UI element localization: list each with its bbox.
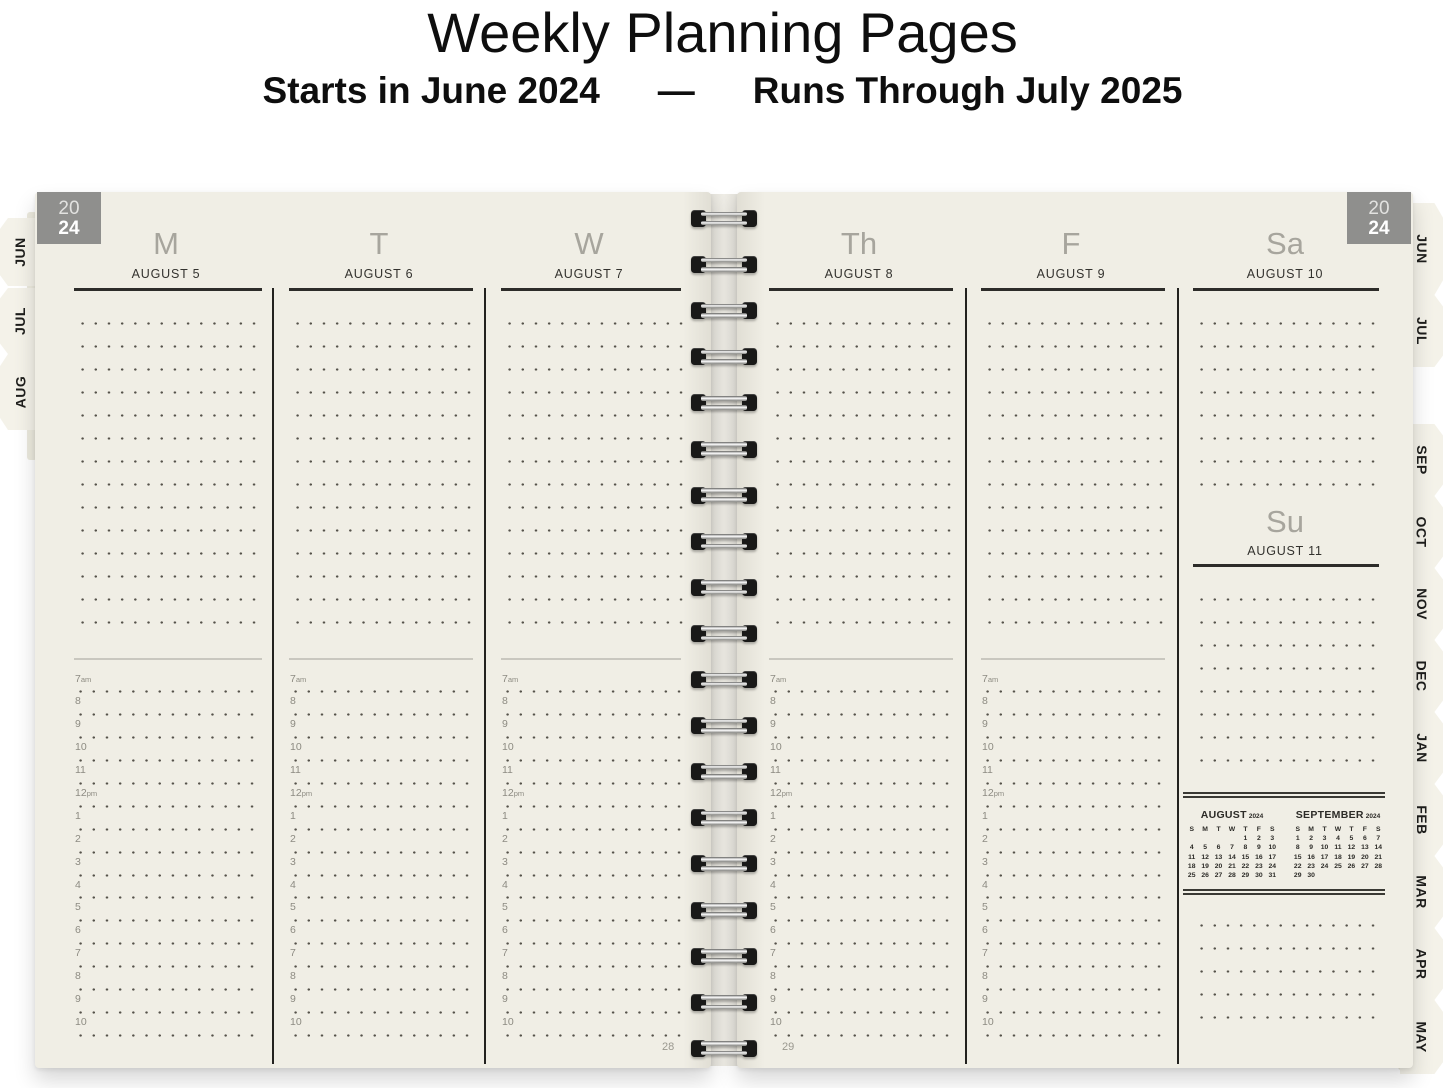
dow-cell: S [1372, 825, 1385, 834]
date-cell: 25 [1331, 862, 1344, 871]
time-slot-dots [289, 805, 473, 808]
time-slot-dots [981, 782, 1165, 785]
time-slot-dots [981, 851, 1165, 854]
dow-cell: W [1225, 825, 1238, 834]
mini-calendar-title: AUGUST2024 [1185, 805, 1279, 823]
time-slot: 6 [501, 924, 683, 947]
coil-wire-top [701, 534, 747, 539]
dow-cell: F [1252, 825, 1265, 834]
meridiem-label: am [81, 675, 91, 684]
time-label: 11 [770, 764, 781, 776]
time-label: 3 [75, 856, 81, 868]
time-label: 7am [75, 673, 91, 685]
time-label: 2 [982, 833, 988, 845]
time-slot-dots [769, 942, 953, 945]
binding-coil [691, 210, 757, 227]
time-label: 9 [502, 993, 508, 1005]
time-slot: 4 [289, 878, 475, 901]
date-cell: 17 [1318, 853, 1331, 862]
time-label: 2 [75, 833, 81, 845]
coil-wire-top [701, 673, 747, 678]
time-label: 10 [290, 741, 302, 753]
mini-calendar-september: SEPTEMBER2024SMTWTFS12345678910111213141… [1291, 805, 1385, 885]
time-slot: 7 [74, 947, 264, 970]
time-label: 5 [982, 901, 988, 913]
date-cell: 19 [1198, 862, 1211, 871]
month-tab-left-jun: JUN [0, 218, 40, 286]
month-tab-left-jul: JUL [0, 288, 40, 354]
schedule: 7am89101112pm12345678910 [981, 672, 1167, 1038]
time-slot: 11 [981, 764, 1167, 787]
dow-cell: S [1185, 825, 1198, 834]
binding-coil [691, 809, 757, 826]
date-cell: 1 [1239, 834, 1252, 843]
day-rule [769, 288, 953, 291]
year-badge-line1: 20 [37, 199, 101, 219]
coil-wire-top [701, 1041, 747, 1046]
time-label: 1 [290, 810, 296, 822]
date-cell: 14 [1372, 843, 1385, 852]
date-cell: 15 [1239, 853, 1252, 862]
time-label: 12pm [290, 787, 312, 799]
dow-cell: M [1198, 825, 1211, 834]
coil-wire-bottom [701, 590, 747, 595]
time-slot-dots [289, 1034, 473, 1037]
date-cell [1185, 834, 1198, 843]
month-tab-left-aug: AUG [0, 354, 40, 430]
time-label: 7am [290, 673, 306, 685]
dow-cell: M [1304, 825, 1317, 834]
mini-calendar-month: SEPTEMBER [1296, 809, 1364, 821]
coil-wire-bottom [701, 221, 747, 226]
date-cell [1318, 871, 1331, 880]
time-slot-dots [769, 1011, 953, 1014]
coil-wire-bottom [701, 958, 747, 963]
dow-cell: F [1358, 825, 1371, 834]
date-cell: 25 [1185, 871, 1198, 880]
time-slot: 7am [501, 672, 683, 695]
time-slot-dots [501, 1011, 681, 1014]
time-slot-dots [501, 919, 681, 922]
time-label: 1 [982, 810, 988, 822]
time-slot: 5 [289, 901, 475, 924]
meridiem-label: am [988, 675, 998, 684]
day-rule [981, 288, 1165, 291]
time-slot: 1 [501, 809, 683, 832]
coil-wire-bottom [701, 1051, 747, 1056]
meridiem-label: am [296, 675, 306, 684]
binding-coil [691, 1040, 757, 1057]
date-cell: 26 [1345, 862, 1358, 871]
date-cell: 27 [1212, 871, 1225, 880]
time-slot: 7 [769, 947, 955, 970]
coil-wire-top [701, 811, 747, 816]
date-cell: 3 [1318, 834, 1331, 843]
date-cell: 10 [1318, 843, 1331, 852]
coil-wire-bottom [701, 912, 747, 917]
date-cell [1331, 871, 1344, 880]
time-label: 10 [982, 1016, 994, 1028]
time-label: 3 [770, 856, 776, 868]
day-date-th: AUGUST 8 [755, 267, 963, 281]
time-slot-dots [501, 942, 681, 945]
time-label: 7am [770, 673, 786, 685]
day-abbr-w: W [487, 226, 691, 262]
day-column-m: MAUGUST 57am89101112pm12345678910 [60, 192, 272, 1068]
time-slot-dots [769, 713, 953, 716]
time-slot-dots [74, 1034, 262, 1037]
time-slot-dots [769, 1034, 953, 1037]
time-label: 8 [290, 970, 296, 982]
coil-wire-top [701, 995, 747, 1000]
time-slot-dots [981, 896, 1165, 899]
subtitle-start: Starts in June 2024 [263, 70, 600, 112]
time-slot: 12pm [501, 786, 683, 809]
time-label: 9 [502, 718, 508, 730]
notes-grid-bottom [1193, 904, 1379, 1036]
time-label: 6 [770, 924, 776, 936]
time-label: 11 [290, 764, 301, 776]
time-slot: 11 [74, 764, 264, 787]
time-label: 9 [770, 993, 776, 1005]
binding-coil [691, 533, 757, 550]
mini-calendar-august: AUGUST2024SMTWTFS12345678910111213141516… [1185, 805, 1279, 885]
date-cell [1212, 834, 1225, 843]
binding-coil [691, 302, 757, 319]
time-slot-dots [501, 988, 681, 991]
time-slot: 12pm [289, 786, 475, 809]
time-slot: 5 [769, 901, 955, 924]
schedule: 7am89101112pm12345678910 [501, 672, 683, 1038]
time-slot: 3 [74, 855, 264, 878]
date-cell: 24 [1318, 862, 1331, 871]
date-cell: 16 [1304, 853, 1317, 862]
coil-wire-bottom [701, 728, 747, 733]
schedule: 7am89101112pm12345678910 [289, 672, 475, 1038]
time-slot: 9 [289, 992, 475, 1015]
coil-wire-bottom [701, 497, 747, 502]
month-tab-label: JUN [1413, 234, 1429, 264]
time-slot-dots [501, 713, 681, 716]
time-slot: 7 [981, 947, 1167, 970]
time-slot-dots [769, 851, 953, 854]
coil-wire-top [701, 488, 747, 493]
dow-cell: T [1212, 825, 1225, 834]
notes-grid [74, 302, 264, 644]
day-date-w: AUGUST 7 [487, 267, 691, 281]
coil-wire-top [701, 580, 747, 585]
notes-grid [289, 302, 475, 644]
time-slot-dots [769, 828, 953, 831]
time-label: 8 [770, 970, 776, 982]
coil-wire-top [701, 442, 747, 447]
time-slot-dots [769, 896, 953, 899]
binding-coil [691, 579, 757, 596]
day-abbr-f: F [967, 226, 1175, 262]
meridiem-label: pm [87, 789, 97, 798]
time-slot-dots [74, 851, 262, 854]
time-label: 10 [502, 1016, 514, 1028]
coil-wire-top [701, 258, 747, 263]
coil-wire-bottom [701, 1005, 747, 1010]
time-slot-dots [981, 828, 1165, 831]
schedule-separator [981, 658, 1165, 660]
time-label: 10 [75, 1016, 87, 1028]
time-label: 9 [75, 718, 81, 730]
notes-grid [769, 302, 955, 644]
time-label: 7 [75, 947, 81, 959]
date-cell [1345, 871, 1358, 880]
time-slot: 6 [289, 924, 475, 947]
time-slot-dots [981, 1034, 1165, 1037]
date-cell: 27 [1358, 862, 1371, 871]
time-slot: 12pm [769, 786, 955, 809]
day-date-f: AUGUST 9 [967, 267, 1175, 281]
right-page: 20 24 Sa AUGUST 10 Su AUGUST 11 AUGUST20… [737, 192, 1413, 1068]
schedule-separator [289, 658, 473, 660]
date-cell: 11 [1185, 853, 1198, 862]
date-cell: 3 [1266, 834, 1279, 843]
date-cell [1225, 834, 1238, 843]
time-slot-dots [289, 713, 473, 716]
coil-wire-bottom [701, 451, 747, 456]
time-slot: 9 [769, 992, 955, 1015]
coil-wire-bottom [701, 313, 747, 318]
time-slot-dots [74, 690, 262, 693]
time-slot-dots [74, 942, 262, 945]
time-slot: 8 [501, 970, 683, 993]
time-label: 12pm [502, 787, 524, 799]
time-slot: 8 [74, 970, 264, 993]
time-slot: 9 [501, 992, 683, 1015]
time-slot: 9 [74, 992, 264, 1015]
meridiem-label: pm [782, 789, 792, 798]
mini-calendar-year: 2024 [1249, 813, 1263, 820]
month-tab-label: APR [1414, 948, 1430, 979]
time-slot-dots [289, 736, 473, 739]
time-slot-dots [289, 896, 473, 899]
time-slot: 8 [769, 695, 955, 718]
month-tab-label: OCT [1414, 516, 1430, 547]
time-label: 11 [75, 764, 86, 776]
day-column-w: WAUGUST 77am89101112pm12345678910 [487, 192, 691, 1068]
time-label: 9 [290, 718, 296, 730]
month-tab-label: AUG [12, 376, 28, 409]
date-cell [1198, 834, 1211, 843]
planner-product-image: Weekly Planning Pages Starts in June 202… [0, 0, 1445, 1088]
day-column-t: TAUGUST 67am89101112pm12345678910 [275, 192, 483, 1068]
time-slot: 3 [981, 855, 1167, 878]
meridiem-label: am [508, 675, 518, 684]
hero-subtitle: Starts in June 2024 — Runs Through July … [0, 70, 1445, 112]
month-tab-label: FEB [1414, 805, 1430, 835]
time-slot-dots [981, 874, 1165, 877]
time-slot-dots [501, 965, 681, 968]
time-slot-dots [981, 1011, 1165, 1014]
notes-grid-saturday [1193, 302, 1379, 502]
time-slot: 3 [769, 855, 955, 878]
column-divider [272, 288, 274, 1064]
time-slot-dots [501, 759, 681, 762]
time-label: 5 [770, 901, 776, 913]
time-label: 4 [75, 879, 81, 891]
mini-calendar-year: 2024 [1366, 813, 1380, 820]
time-slot-dots [289, 690, 473, 693]
time-slot: 10 [981, 741, 1167, 764]
schedule: 7am89101112pm12345678910 [74, 672, 264, 1038]
time-slot-dots [74, 1011, 262, 1014]
time-slot-dots [501, 690, 681, 693]
time-slot: 10 [74, 1015, 264, 1038]
date-cell: 8 [1291, 843, 1304, 852]
time-label: 10 [75, 741, 87, 753]
time-label: 10 [502, 741, 514, 753]
binding-coil [691, 256, 757, 273]
day-rule [289, 288, 473, 291]
date-cell: 12 [1345, 843, 1358, 852]
time-slot: 2 [769, 832, 955, 855]
mini-calendar-grid: SMTWTFS123456789101112131415161718192021… [1291, 825, 1385, 880]
date-cell: 22 [1239, 862, 1252, 871]
time-slot-dots [769, 874, 953, 877]
time-slot: 8 [981, 970, 1167, 993]
mini-calendars: AUGUST2024SMTWTFS12345678910111213141516… [1185, 805, 1385, 885]
time-slot: 1 [74, 809, 264, 832]
day-abbr-th: Th [755, 226, 963, 262]
time-slot: 4 [501, 878, 683, 901]
time-slot-dots [74, 713, 262, 716]
time-slot: 10 [289, 1015, 475, 1038]
date-cell: 14 [1225, 853, 1238, 862]
time-slot-dots [501, 874, 681, 877]
time-slot-dots [769, 690, 953, 693]
date-cell: 16 [1252, 853, 1265, 862]
date-cell: 26 [1198, 871, 1211, 880]
time-label: 8 [982, 695, 988, 707]
date-cell: 4 [1331, 834, 1344, 843]
meridiem-label: pm [302, 789, 312, 798]
time-label: 6 [502, 924, 508, 936]
time-slot-dots [289, 1011, 473, 1014]
time-slot: 6 [769, 924, 955, 947]
schedule-separator [501, 658, 681, 660]
date-cell: 4 [1185, 843, 1198, 852]
date-cell: 17 [1266, 853, 1279, 862]
day-rule-sunday [1193, 564, 1379, 567]
time-label: 8 [502, 695, 508, 707]
subtitle-end: Runs Through July 2025 [753, 70, 1183, 112]
time-label: 4 [770, 879, 776, 891]
month-tab-label: JAN [1413, 733, 1429, 763]
time-label: 8 [982, 970, 988, 982]
day-rule [74, 288, 262, 291]
date-cell: 7 [1225, 843, 1238, 852]
day-date-t: AUGUST 6 [275, 267, 483, 281]
day-rule [501, 288, 681, 291]
time-label: 11 [982, 764, 993, 776]
time-slot-dots [501, 782, 681, 785]
time-label: 7 [290, 947, 296, 959]
time-slot: 9 [289, 718, 475, 741]
time-slot-dots [74, 896, 262, 899]
date-cell: 6 [1358, 834, 1371, 843]
time-slot: 8 [769, 970, 955, 993]
time-label: 4 [290, 879, 296, 891]
date-cell: 9 [1304, 843, 1317, 852]
year-badge-line1: 20 [1347, 199, 1411, 219]
binding-coil [691, 717, 757, 734]
time-slot: 7am [74, 672, 264, 695]
time-label: 3 [290, 856, 296, 868]
date-cell: 28 [1372, 862, 1385, 871]
binding-coil [691, 441, 757, 458]
mini-calendar-frame-top [1183, 792, 1385, 798]
time-slot: 11 [769, 764, 955, 787]
date-cell: 2 [1304, 834, 1317, 843]
time-slot: 8 [289, 970, 475, 993]
notes-grid-sunday [1193, 578, 1379, 782]
day-date-sunday: AUGUST 11 [1179, 544, 1391, 558]
time-label: 8 [770, 695, 776, 707]
coil-wire-bottom [701, 544, 747, 549]
time-label: 7 [770, 947, 776, 959]
time-label: 9 [982, 993, 988, 1005]
time-label: 1 [770, 810, 776, 822]
time-slot: 8 [74, 695, 264, 718]
time-label: 10 [770, 741, 782, 753]
time-slot: 7am [289, 672, 475, 695]
date-cell: 18 [1185, 862, 1198, 871]
date-cell: 20 [1212, 862, 1225, 871]
schedule-separator [74, 658, 262, 660]
date-cell: 1 [1291, 834, 1304, 843]
date-cell: 31 [1266, 871, 1279, 880]
time-slot-dots [501, 851, 681, 854]
binding-coil [691, 625, 757, 642]
time-slot-dots [981, 690, 1165, 693]
time-label: 7am [982, 673, 998, 685]
time-slot: 3 [289, 855, 475, 878]
time-slot-dots [981, 965, 1165, 968]
coil-wire-top [701, 903, 747, 908]
coil-wire-top [701, 396, 747, 401]
binding-coil [691, 487, 757, 504]
time-slot-dots [769, 919, 953, 922]
time-slot-dots [501, 805, 681, 808]
time-label: 11 [502, 764, 513, 776]
dow-cell: T [1345, 825, 1358, 834]
time-slot: 10 [289, 741, 475, 764]
mini-calendar-month: AUGUST [1201, 809, 1247, 821]
date-cell: 29 [1291, 871, 1304, 880]
time-slot: 2 [289, 832, 475, 855]
time-slot-dots [289, 759, 473, 762]
time-label: 8 [75, 695, 81, 707]
time-slot: 1 [981, 809, 1167, 832]
time-slot: 8 [501, 695, 683, 718]
time-slot-dots [981, 805, 1165, 808]
day-rule-saturday [1193, 288, 1379, 291]
time-slot-dots [769, 805, 953, 808]
time-slot-dots [74, 736, 262, 739]
notes-grid [981, 302, 1167, 644]
schedule: 7am89101112pm12345678910 [769, 672, 955, 1038]
mini-calendar-grid: SMTWTFS123456789101112131415161718192021… [1185, 825, 1279, 880]
day-column-f: FAUGUST 97am89101112pm12345678910 [967, 192, 1175, 1068]
time-slot: 5 [981, 901, 1167, 924]
coil-wire-top [701, 350, 747, 355]
time-slot: 4 [981, 878, 1167, 901]
